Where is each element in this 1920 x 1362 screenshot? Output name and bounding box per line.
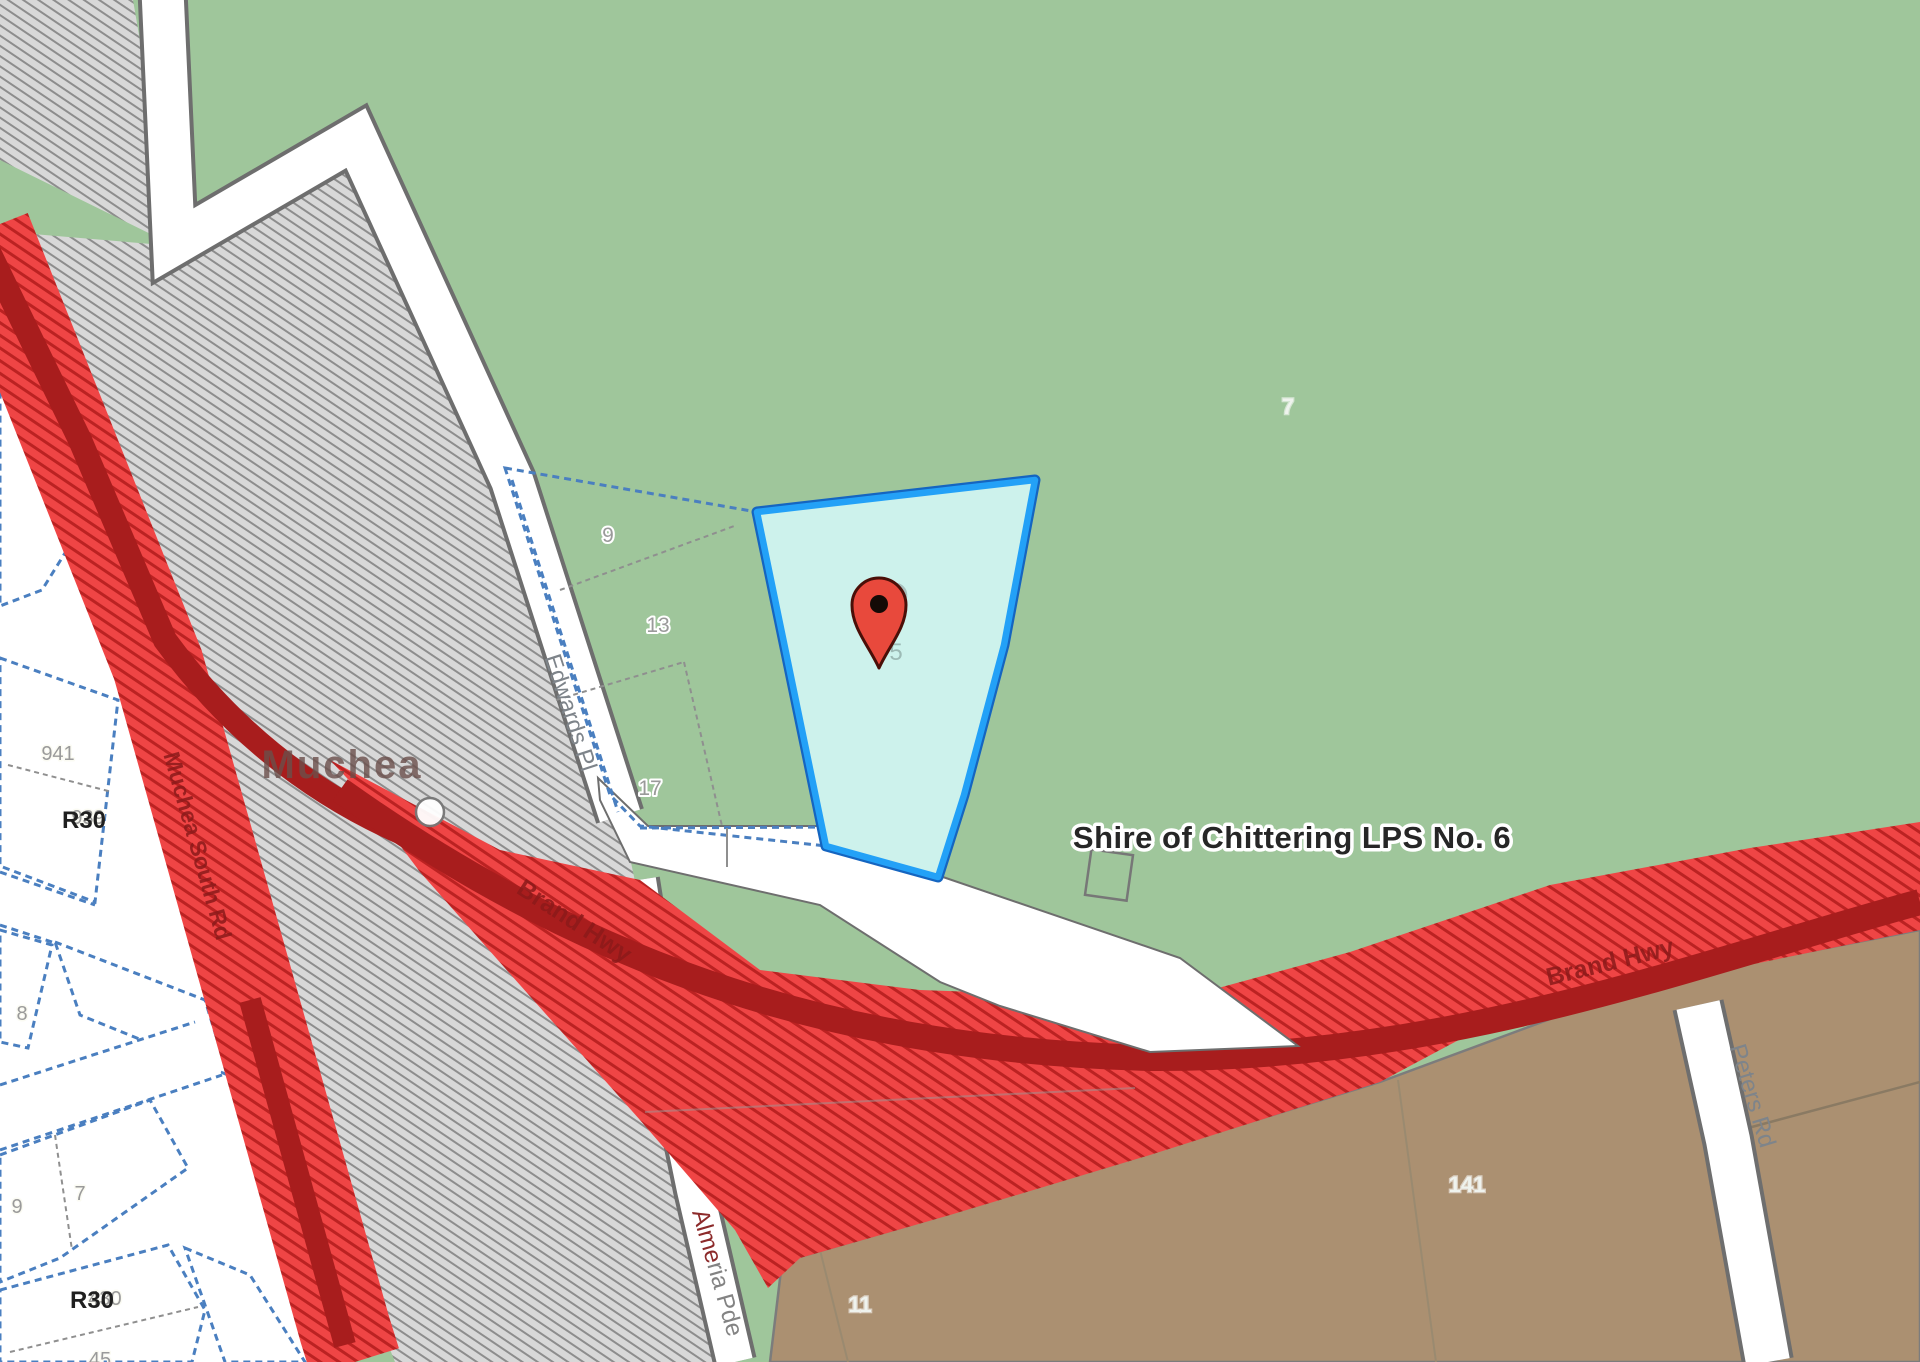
lot-9-west-label: 9 [11, 1196, 22, 1218]
lot-45-label: 45 [89, 1349, 111, 1362]
locality-label: Muchea [262, 743, 423, 787]
zoning-r30-north-label: R30 [62, 807, 106, 834]
lot-13-label: 13 [646, 614, 669, 637]
lot-7-green-label: 7 [1282, 394, 1294, 419]
south-cadastral-dash [640, 827, 845, 828]
zoning-r30-south-label: R30 [70, 1287, 114, 1314]
junction-circle-icon [416, 798, 444, 826]
plan-title-label: Shire of Chittering LPS No. 6 [1073, 820, 1511, 855]
lot-941-label: 941 [41, 743, 74, 765]
lot-9-label: 9 [602, 524, 614, 547]
map-canvas[interactable]: Shire of Chittering LPS No. 6 Muchea Edw… [0, 0, 1920, 1362]
lot-7-west-label: 7 [74, 1183, 85, 1205]
lot-8-label: 8 [16, 1003, 27, 1025]
pin-center-dot [870, 595, 888, 613]
lot-17-label: 17 [638, 777, 661, 800]
lot-11-label: 11 [848, 1292, 871, 1317]
map-viewport[interactable]: Shire of Chittering LPS No. 6 Muchea Edw… [0, 0, 1920, 1362]
lot-141-label: 141 [1449, 1172, 1486, 1197]
